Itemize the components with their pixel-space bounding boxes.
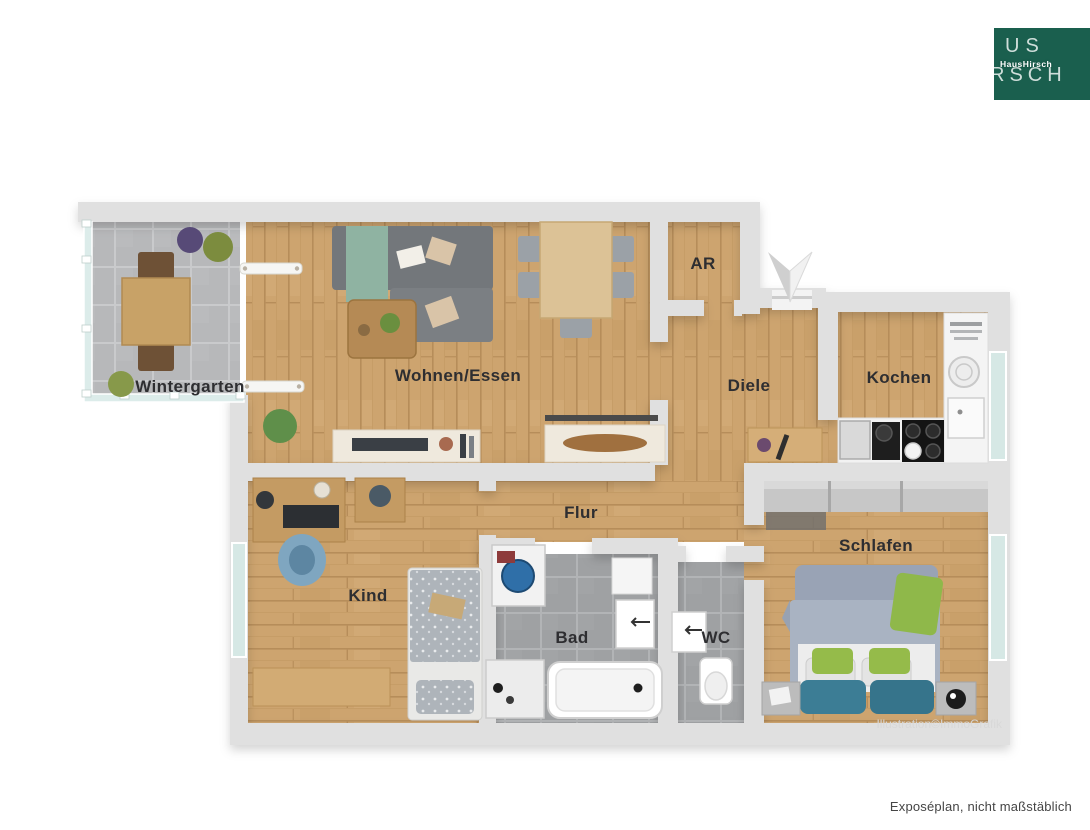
- wall-diele-kochen: [818, 312, 838, 420]
- room-label-flur: Flur: [564, 503, 598, 522]
- burner: [926, 424, 940, 438]
- sink-steel: [840, 421, 870, 459]
- green-pillow: [869, 648, 910, 674]
- room-label-wintergarten: Wintergarten: [135, 377, 245, 396]
- towel-shelf: [612, 558, 652, 594]
- room-label-schlafen: Schlafen: [839, 536, 913, 555]
- window-kochen: [990, 352, 1006, 460]
- wall-bad-top: [592, 538, 668, 554]
- plant: [203, 232, 233, 262]
- garden-table: [122, 278, 190, 345]
- illustration-watermark: Illustration©ImmoGrafik: [876, 717, 1003, 731]
- wooden-bowl: [563, 434, 647, 452]
- haushirsch-logo: US RSCH HausHirsch: [994, 28, 1090, 100]
- pan: [876, 425, 892, 441]
- monitor: [283, 505, 339, 528]
- garden-chair: [138, 252, 174, 280]
- green-blanket: [889, 572, 944, 636]
- wall-shelf: [545, 415, 658, 421]
- bathtub-faucet: [634, 684, 643, 693]
- table-plant: [380, 313, 400, 333]
- diele-furniture: [748, 428, 822, 462]
- bench: [253, 668, 390, 706]
- utensils: [950, 322, 982, 326]
- plates: [949, 357, 979, 387]
- flowers: [439, 437, 453, 451]
- wall-middle-right: [744, 463, 1010, 481]
- shower-head: [493, 683, 503, 693]
- flur-floor: [496, 481, 744, 542]
- bowl: [358, 324, 370, 336]
- book: [769, 686, 791, 705]
- burner: [926, 444, 940, 458]
- wall-schlafen-left: [744, 580, 764, 745]
- lamp: [946, 689, 966, 709]
- kitchen-counter-right: [944, 313, 988, 463]
- bed-pillow: [416, 680, 474, 714]
- dining-chair: [518, 272, 542, 298]
- pot: [905, 443, 921, 459]
- room-label-kochen: Kochen: [867, 368, 932, 387]
- room-label-wohnen-essen: Wohnen/Essen: [395, 366, 521, 385]
- wall-top: [78, 202, 760, 222]
- glass-wall-left: [84, 222, 92, 402]
- wardrobe-shadow: [766, 512, 826, 530]
- room-label-diele: Diele: [728, 376, 771, 395]
- plant: [177, 227, 203, 253]
- footer-note: Exposéplan, nicht maßstäblich: [890, 799, 1072, 814]
- potted-plant: [263, 409, 297, 443]
- room-label-kind: Kind: [348, 586, 387, 605]
- bed-duvet: [410, 570, 480, 662]
- dining-chair: [610, 272, 634, 298]
- room-label-ar: AR: [690, 254, 715, 273]
- logo-overlay-text: HausHirsch: [1000, 59, 1052, 69]
- plant: [108, 371, 134, 397]
- desk-papers: [314, 482, 330, 498]
- wall-kochen-top: [818, 292, 1010, 312]
- burner: [906, 424, 920, 438]
- headphones: [256, 491, 274, 509]
- throw-blanket: [346, 226, 388, 302]
- room-label-bad: Bad: [555, 628, 588, 647]
- teal-pillow: [870, 680, 934, 714]
- dining-chair: [518, 236, 542, 262]
- room-label-wc: WC: [701, 628, 730, 647]
- kitchen-sink: [948, 398, 984, 438]
- sideboard-items: [352, 438, 428, 451]
- green-pillow: [812, 648, 853, 674]
- wall-wc-top: [726, 546, 764, 562]
- window-kind: [232, 543, 246, 657]
- teal-pillow: [800, 680, 866, 714]
- dining-chair: [610, 236, 634, 262]
- dining-table: [540, 222, 612, 318]
- floorplan-page: Wintergarten Wohnen/Essen AR Diele Koche…: [0, 0, 1090, 830]
- window-schlafen: [990, 535, 1006, 660]
- logo-line1: US: [1005, 35, 1045, 58]
- garden-chair: [138, 343, 174, 371]
- floorplan-canvas: Wintergarten Wohnen/Essen AR Diele Koche…: [0, 0, 1090, 830]
